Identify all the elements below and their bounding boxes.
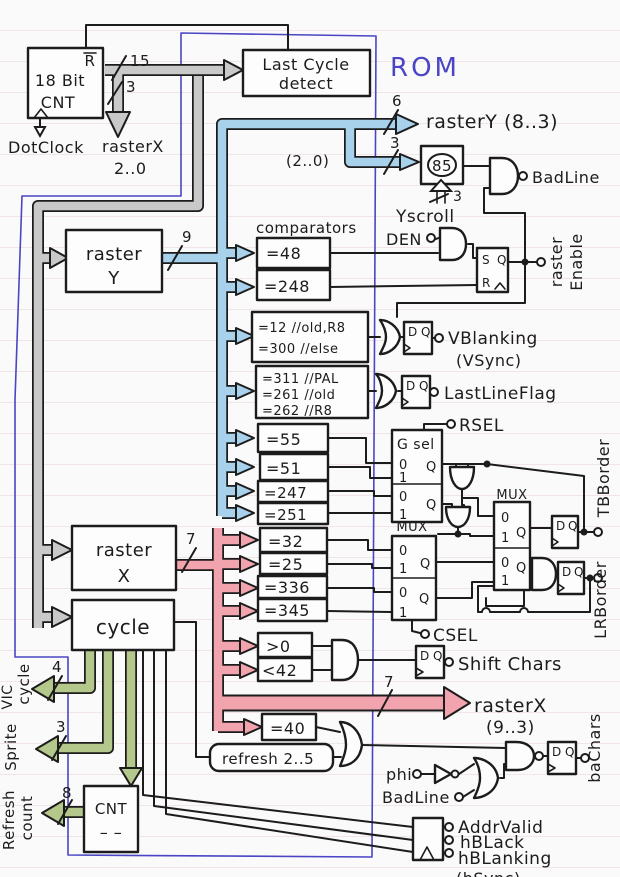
and-gate-border-1 [450, 467, 474, 489]
refresh-box: refresh 2..5 [210, 744, 333, 771]
cmp-51-label: =51 [266, 459, 301, 478]
raster-enable-group: DEN S Q R raster Enable [386, 228, 586, 292]
counter-label-2: CNT [41, 93, 75, 112]
output-register-group: AddrValid hBLack hBLanking (hSync) [413, 818, 552, 877]
rsel-label: RSEL [459, 416, 504, 436]
rasterx-out-label-2: (9..3) [486, 718, 535, 738]
svg-text:D: D [556, 519, 566, 533]
wire-reset-loop [86, 25, 288, 50]
comparators-label: comparators [256, 219, 357, 237]
svg-text:1: 1 [501, 574, 510, 589]
refresh-count-label-2: count [18, 796, 36, 841]
hblanking-bubble [445, 849, 453, 857]
bachars-label: baChars [585, 713, 604, 783]
raster-y-block: raster Y 9 [66, 228, 192, 292]
arrow-rastery-out [396, 114, 418, 134]
vic-cycle-label-1: VIC [0, 685, 16, 710]
svg-text:Q: Q [419, 379, 429, 393]
or-gate-40-refresh [340, 722, 362, 766]
arrow-rasterx-out [444, 687, 470, 719]
width-15: 15 [130, 52, 150, 70]
den-bubble [427, 234, 435, 242]
comparator-247: =247 [258, 481, 328, 502]
sr-q: Q [497, 253, 507, 267]
svg-text:Q: Q [574, 565, 584, 579]
tbborder-bubble [594, 528, 602, 536]
cmp-311-label: =311 //PAL [262, 372, 339, 387]
lastlineflag-label: LastLineFlag [444, 384, 557, 404]
dotclock-label: DotClock [8, 138, 84, 157]
shift-chars-label: Shift Chars [458, 654, 562, 675]
nand-gate-ba [506, 742, 534, 770]
svg-text:0: 0 [399, 586, 408, 601]
svg-text:Q: Q [419, 592, 430, 607]
addrvalid-bubble [445, 823, 453, 831]
cmp-40-label: =40 [270, 719, 305, 738]
badline-top-label: BadLine [532, 168, 600, 187]
vblank-bubble [435, 334, 443, 342]
raster-enable-bubble [537, 258, 545, 266]
raster-x-block: raster X 7 [72, 526, 196, 590]
mux-right-label: MUX [496, 488, 527, 503]
hblack-bubble [445, 836, 453, 844]
cmp-12-label: =12 //old,R8 [258, 321, 346, 336]
comparator-51: =51 [260, 454, 328, 480]
rasterx-low-label-2: 2..0 [114, 159, 147, 178]
cnt-down-dashes: – – [100, 823, 123, 842]
cmp-55-label: =55 [266, 430, 301, 449]
svg-text:0: 0 [501, 511, 510, 526]
svg-text:D: D [420, 649, 430, 663]
width-3-sprite: 3 [56, 718, 66, 736]
den-label: DEN [386, 230, 422, 249]
and-gate-shift [332, 640, 358, 680]
phi-label: phi [386, 765, 412, 784]
cmp-gt0-label: >0 [266, 637, 291, 656]
comparator-248: =248 [257, 270, 330, 300]
hblanking-label: hBLanking [458, 849, 552, 869]
or-gate-phi-badline [474, 758, 498, 798]
arrow-to-cycle [52, 607, 72, 627]
svg-text:Q: Q [565, 745, 575, 759]
cmp-247-label: =247 [264, 484, 307, 502]
cmp-261-label: =261 //old [262, 388, 335, 403]
width-7-out: 7 [384, 673, 394, 691]
refresh-count-label-1: Refresh [0, 790, 18, 850]
rasterx-low-label-1: rasterX [102, 137, 164, 156]
svg-text:Q: Q [433, 649, 443, 663]
svg-text:D: D [406, 379, 416, 393]
lastlineflag-group: D Q LastLineFlag [376, 374, 557, 408]
svg-text:D: D [408, 325, 418, 339]
arrow-sprite [36, 736, 58, 762]
last-cycle-label-1: Last Cycle [262, 55, 349, 74]
cycle-label: cycle [96, 615, 150, 639]
cmp-lt42-label: <42 [262, 661, 297, 680]
counter-label-1: 18 Bit [35, 71, 85, 90]
mux-left-label: MUX [396, 520, 427, 535]
vblanking-group: D Q VBlanking (VSync) [380, 320, 538, 370]
width-3-cmp: 3 [390, 134, 400, 152]
vblanking-label: VBlanking [448, 329, 538, 349]
lrborder-label: LRBorder [591, 561, 610, 639]
comparator-lastline: =311 //PAL =261 //old =262 //R8 [256, 366, 368, 419]
schematic-drawing: ROM [0, 0, 620, 877]
svg-text:Q: Q [426, 460, 437, 475]
sr-r: R [482, 276, 491, 290]
last-cycle-detect-block: Last Cycle detect [243, 50, 370, 96]
phi-bubble [413, 770, 421, 778]
cmp-25-label: =25 [268, 555, 303, 574]
sprite-label: Sprite [2, 723, 20, 771]
width-4: 4 [52, 658, 62, 676]
cnt-small-label: CNT [95, 800, 128, 818]
rsel-bubble [447, 420, 455, 428]
cmp-345-label: =345 [264, 601, 310, 620]
or-gate-lastline [376, 374, 396, 408]
tbborder-label: TBBorder [594, 439, 613, 518]
vsync-label: (VSync) [456, 351, 522, 370]
arrow-to-raster-x [52, 540, 72, 560]
comparator-vblank: =12 //old,R8 =300 //else [252, 312, 368, 362]
svg-text:0: 0 [501, 556, 510, 571]
rasterx-out-label-1: rasterX [474, 695, 547, 717]
badline-bottom-bubble [455, 793, 463, 801]
lastline-bubble [430, 388, 438, 396]
width-6: 6 [392, 92, 402, 110]
and-gate-border-2 [446, 507, 470, 527]
cmp-336-label: =336 [264, 578, 310, 597]
arrow-refresh-count [42, 800, 64, 826]
svg-text:Q: Q [516, 526, 527, 541]
comparator-gt0: >0 [258, 633, 312, 657]
dotclock-pin [35, 127, 45, 136]
svg-text:1: 1 [399, 606, 408, 621]
svg-text:0: 0 [399, 490, 408, 505]
badline-gate-top: BadLine [490, 158, 600, 194]
cycle-block: cycle [72, 600, 174, 650]
raster-x-label-1: raster [96, 540, 152, 561]
comparator-40: =40 [262, 714, 316, 740]
svg-text:0: 0 [399, 544, 408, 559]
width-7: 7 [186, 530, 196, 548]
width-3: 3 [126, 78, 136, 96]
cmp-251-label: =251 [264, 506, 307, 524]
svg-text:Q: Q [516, 561, 527, 576]
comparator-251: =251 [258, 503, 328, 524]
and-gate-lrborder [532, 558, 556, 590]
shift-chars-bubble [445, 658, 453, 666]
svg-text:Q: Q [421, 325, 431, 339]
arrow-to-cmp85 [400, 154, 419, 170]
width-8: 8 [62, 784, 72, 802]
cmp-300-label: =300 //else [258, 342, 338, 357]
svg-text:D: D [562, 565, 572, 579]
arrow-rasterx-low [106, 112, 130, 137]
last-cycle-label-2: detect [279, 74, 333, 93]
csel-bubble [421, 630, 429, 638]
vic-cycle-label-2: cycle [15, 663, 33, 704]
refresh-label: refresh 2..5 [222, 750, 314, 768]
csel-label: CSEL [433, 626, 478, 646]
raster-enable-label-1: raster [547, 237, 566, 287]
comparator-336: =336 [258, 576, 327, 598]
sr-s: S [482, 253, 490, 267]
rastery-out-label: rasterY (8..3) [426, 111, 558, 133]
arrow-to-cnt [120, 768, 142, 786]
comparator-345: =345 [258, 599, 327, 621]
refresh-counter-block: CNT – – [84, 786, 138, 852]
rom-label: ROM [390, 53, 460, 83]
phi-buffer [435, 765, 451, 783]
comparator-32: =32 [260, 528, 327, 552]
output-register [413, 818, 443, 860]
bachars-group: phi BadLine D Q baChars [340, 713, 604, 807]
cmp-32-label: =32 [268, 532, 303, 551]
counter-reset-label: R [85, 52, 96, 70]
hsync-cut-label: (hSync) [456, 869, 521, 877]
comparator-25: =25 [260, 553, 327, 574]
cmp-248-label: =248 [264, 277, 310, 296]
svg-text:1: 1 [501, 531, 510, 546]
raster-x-label-2: X [118, 566, 131, 587]
raster-y-label-2: Y [107, 268, 120, 289]
cmp-262-label: =262 //R8 [262, 404, 332, 419]
cmp85-label: 85 [432, 157, 452, 175]
width-3-yscroll: 3 [453, 189, 462, 205]
raster-y-label-1: raster [86, 244, 142, 265]
width-9: 9 [182, 228, 192, 246]
and-gate-den [440, 228, 466, 260]
svg-text:D: D [552, 745, 562, 759]
comparator-48: =48 [257, 238, 330, 268]
yscroll-label: Yscroll [395, 207, 455, 227]
gsel-label: G sel [397, 437, 435, 453]
arrow-to-last-cycle [224, 60, 243, 80]
mux-right [494, 502, 530, 590]
comparator-55: =55 [258, 424, 328, 452]
or-gate-vblank [380, 320, 400, 354]
svg-text:Q: Q [426, 498, 437, 513]
cmp-48-label: =48 [266, 244, 301, 263]
svg-text:1: 1 [399, 471, 408, 486]
badline-bottom-label: BadLine [382, 788, 450, 807]
comparator-lt42: <42 [258, 658, 312, 681]
and-gate-badline [490, 158, 518, 194]
svg-text:Q: Q [420, 557, 431, 572]
arrow-vic-cycle [32, 676, 54, 702]
schematic-page: ROM [0, 0, 620, 877]
bits-2-0-label: (2..0) [286, 152, 329, 170]
svg-text:1: 1 [399, 562, 408, 577]
counter-18bit-block: R 18 Bit CNT DotClock [8, 48, 103, 157]
raster-enable-label-2: Enable [567, 233, 586, 291]
svg-text:Q: Q [568, 519, 578, 533]
badline-bubble [519, 172, 527, 180]
